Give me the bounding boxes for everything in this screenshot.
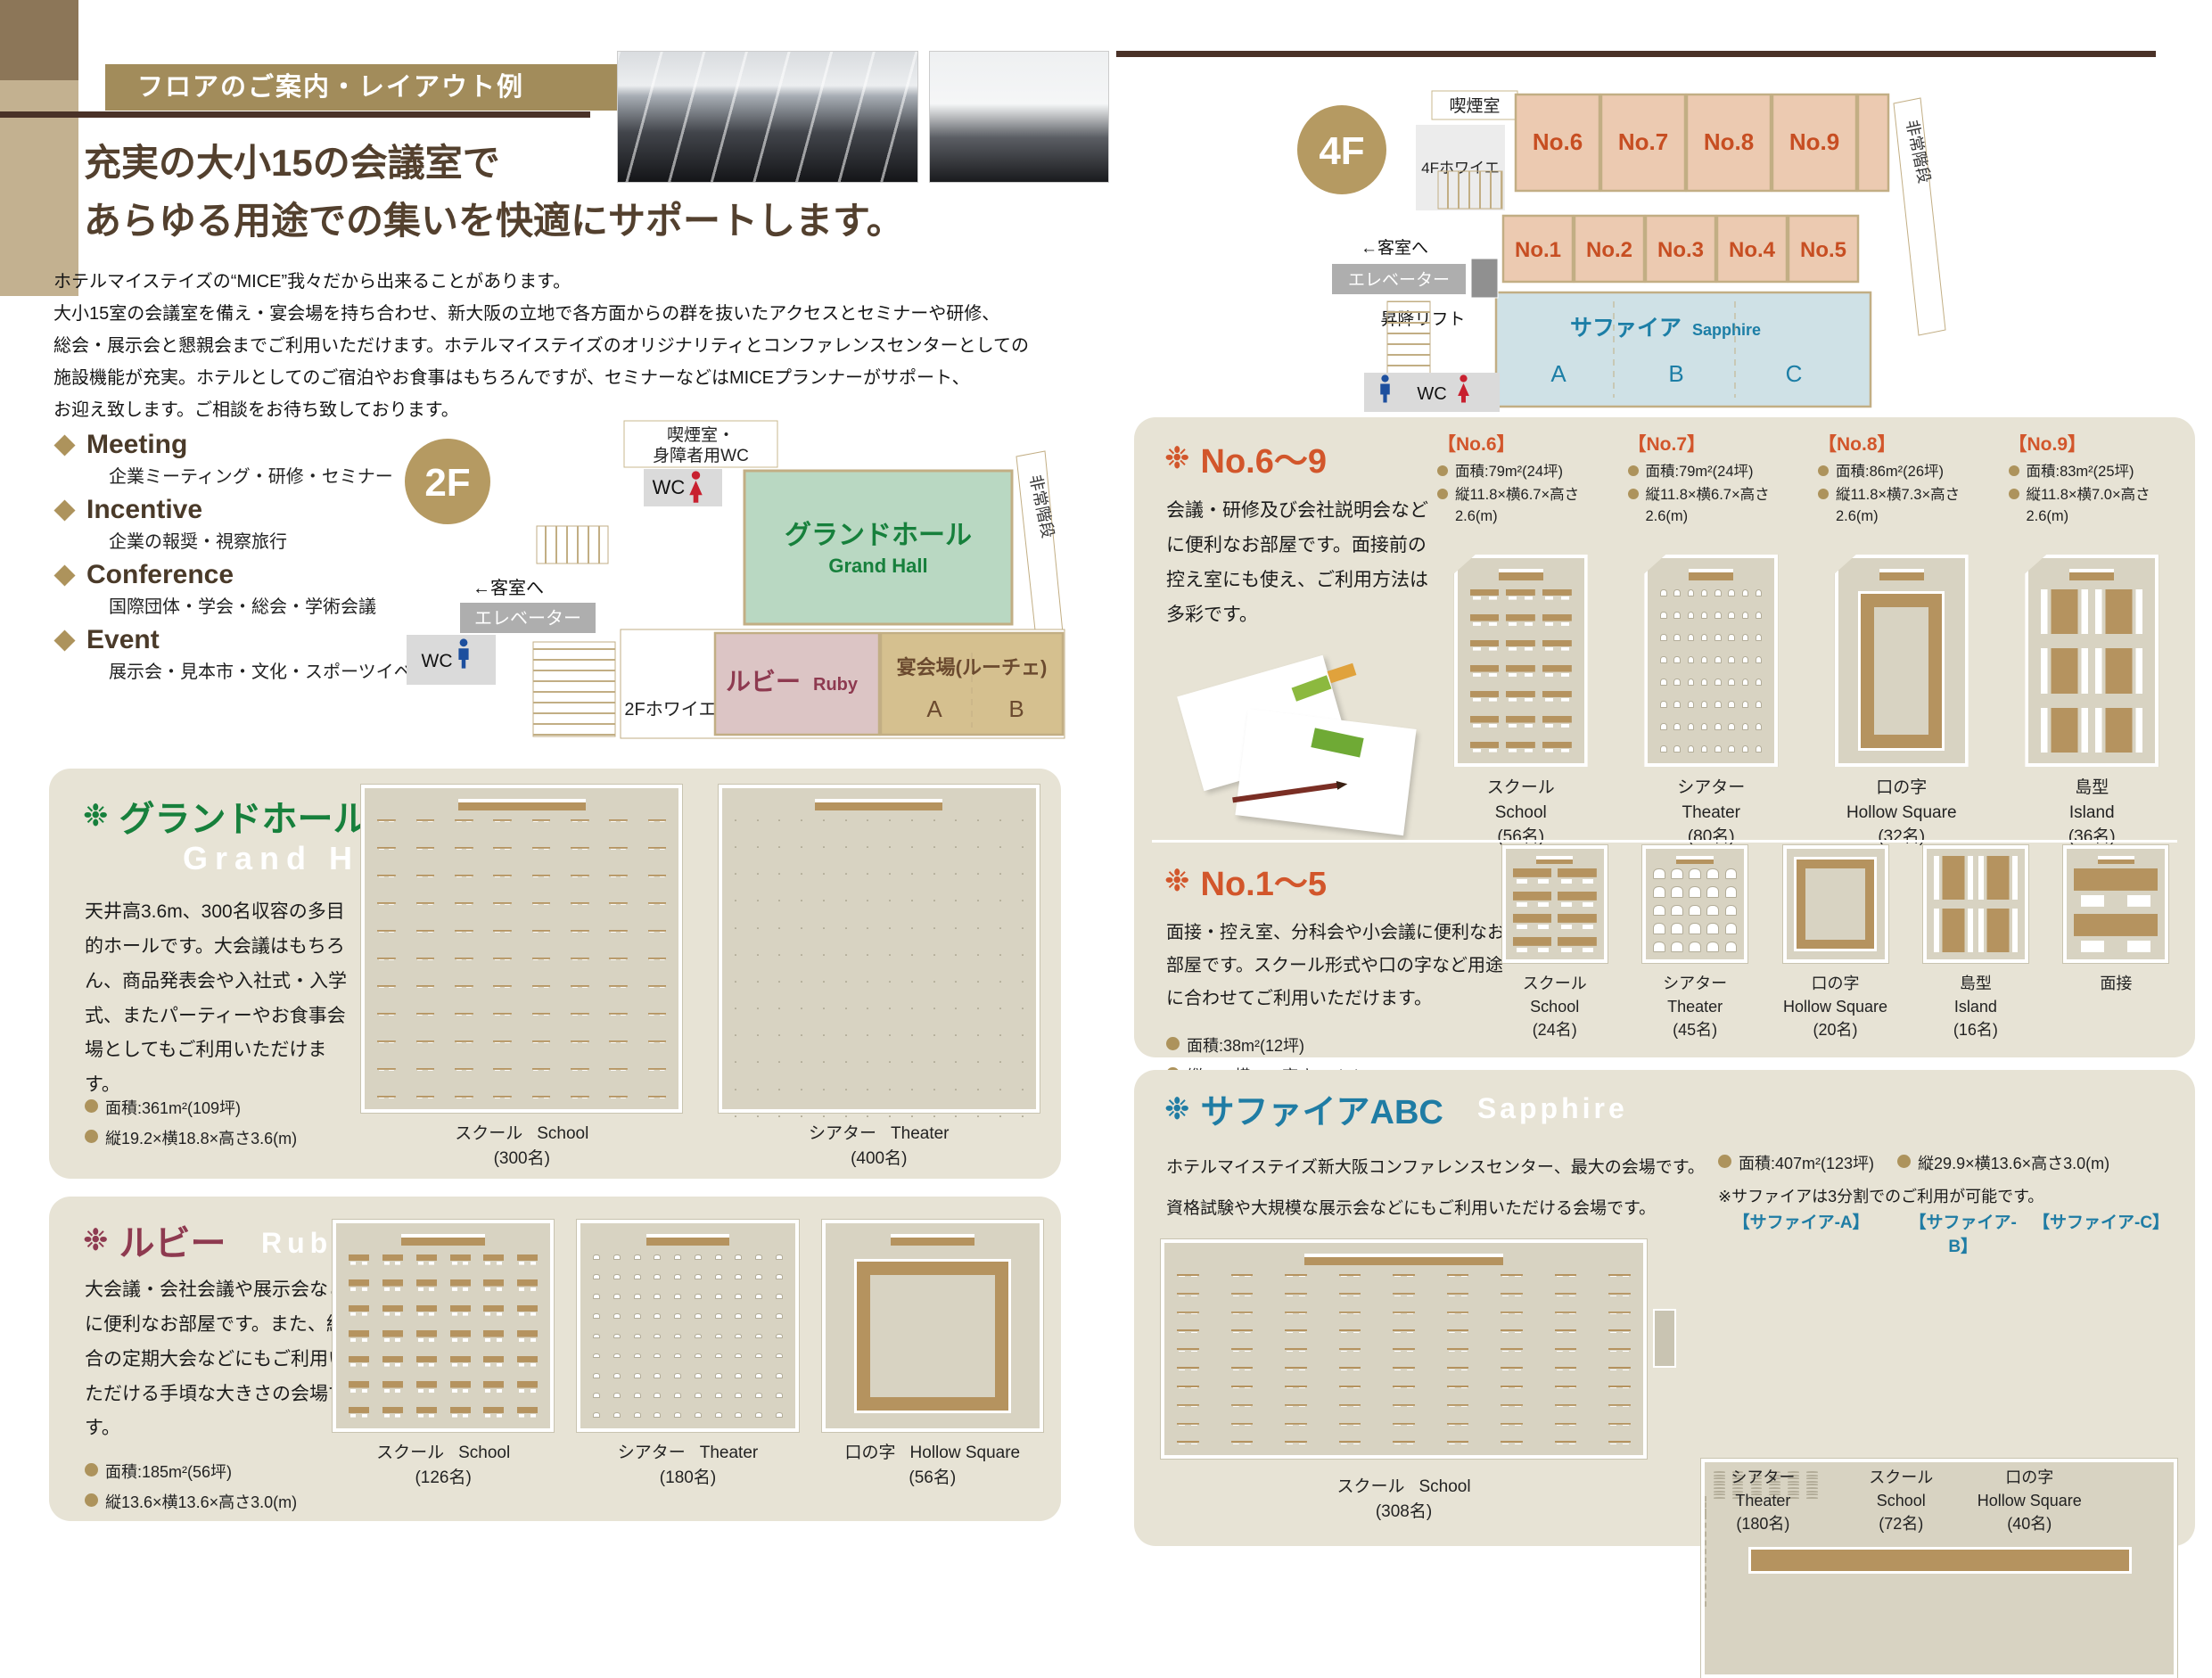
school-seat (1608, 1441, 1631, 1444)
school-seat (483, 1279, 504, 1290)
school-seat (493, 902, 512, 905)
school-seat (1231, 1348, 1254, 1352)
theater-seat (715, 1294, 722, 1299)
theater-seat (955, 1008, 957, 1009)
theater-seat (1653, 905, 1665, 916)
room-layout-diagram (577, 1220, 798, 1432)
school-seat (1285, 1386, 1307, 1389)
theater-seat (715, 1353, 722, 1359)
school-seat (1447, 1367, 1469, 1370)
banquet-area (881, 633, 1063, 735)
wc-upper-label: WC (653, 476, 686, 498)
theater-seat (778, 927, 780, 929)
theater-seat (889, 1034, 891, 1036)
school-seat (349, 1381, 369, 1392)
theater-seat (801, 873, 802, 875)
theater-seat (999, 1008, 1001, 1009)
school-seat (1470, 665, 1500, 676)
theater-seat (735, 1313, 742, 1319)
theater-seat (911, 819, 913, 821)
layout-label: シアターTheater (45名) (1663, 972, 1727, 1041)
school-seat (1339, 1293, 1361, 1296)
sapphire-part-c: C (1786, 360, 1803, 387)
school-seat (455, 1096, 473, 1098)
sapphire-area-label-en: Sapphire (1692, 321, 1761, 339)
theater-seat (1022, 981, 1024, 983)
school-seat (1339, 1441, 1361, 1444)
theater-seat (613, 1412, 621, 1418)
headline-line-2: あらゆる用途での集いを快適にサポートします。 (84, 192, 904, 250)
theater-seat (674, 1353, 681, 1359)
school-seat (382, 1254, 403, 1265)
school-seat (416, 847, 435, 850)
room-specs: 面積:83m²(25坪) 縦11.8×横7.0×高さ2.6(m) (2009, 462, 2176, 547)
theater-seat (889, 954, 891, 956)
no15-title: No.1〜5 (1201, 856, 1327, 905)
school-seat (1506, 742, 1535, 753)
island-seat (1934, 909, 1973, 952)
theater-seat (715, 1393, 722, 1398)
school-seat (382, 1330, 403, 1341)
room-name: 【No.7】 (1628, 430, 1706, 457)
school-seat (349, 1407, 369, 1418)
school-seat (1513, 868, 1552, 884)
theater-seat (911, 981, 913, 983)
theater-seat (1653, 923, 1665, 934)
theater-seat (735, 1061, 736, 1063)
theater-seat (654, 1393, 661, 1398)
island-seat (2095, 648, 2142, 693)
island-seat (2041, 708, 2088, 753)
theater-seat (1022, 873, 1024, 875)
theater-seat (801, 1008, 802, 1009)
no15-layouts: スクールSchool (24名) シアターTheater (45名) 口 (1495, 845, 2175, 1041)
school-seat (1447, 1386, 1469, 1389)
theater-seat (735, 1274, 742, 1279)
theater-seat (911, 927, 913, 929)
theater-seat (593, 1353, 600, 1359)
room-column: 【No.6】 面積:79m²(24坪) 縦11.8×横6.7×高さ2.6(m) … (1437, 430, 1605, 850)
seating-grid (1653, 868, 1737, 952)
theater-seat (735, 954, 736, 956)
school-seat (1339, 1386, 1361, 1389)
theater-seat (1671, 905, 1683, 916)
school-seat (1555, 1441, 1577, 1444)
theater-seat (999, 981, 1001, 983)
theater-seat (933, 981, 935, 983)
theater-seat (715, 1373, 722, 1378)
school-seat (450, 1305, 471, 1316)
theater-seat (1671, 942, 1683, 952)
school-seat (609, 875, 628, 877)
theater-seat (977, 927, 979, 929)
sapphire-note: ※サファイアは3分割でのご利用が可能です。 (1718, 1184, 2043, 1207)
school-seat (1506, 640, 1535, 651)
school-seat (450, 1381, 471, 1392)
theater-seat (654, 1412, 661, 1418)
school-seat (1285, 1367, 1307, 1370)
theater-seat (776, 1412, 783, 1418)
theater-seat (933, 846, 935, 848)
school-seat (349, 1254, 369, 1265)
school-seat (1501, 1312, 1523, 1315)
bullet-icon (1437, 489, 1448, 499)
school-seat (571, 1096, 589, 1098)
presenter-table (1879, 569, 1924, 580)
theater-seat (613, 1334, 621, 1339)
intro-line: 施設機能が充実。ホテルとしてのご宿泊やお食事はもちろんですが、セミナーなどはMI… (53, 362, 1029, 394)
theater-seat (1728, 612, 1734, 619)
sapphire-desc-2: 資格試験や大規模な展示会などにもご利用いただける会場です。 (1166, 1193, 1656, 1224)
presenter-table (458, 799, 586, 810)
theater-seat (911, 1089, 913, 1090)
theater-seat (757, 927, 759, 929)
theater-seat (823, 954, 825, 956)
theater-seat (757, 981, 759, 983)
school-seat (1608, 1312, 1631, 1315)
school-seat (1506, 691, 1535, 702)
floor-map-4f: 4F 喫煙室 4Fホワイエ No.6 No.7 No.8 No.9 No.1 N… (1282, 71, 1986, 415)
school-seat (377, 819, 396, 822)
wc-4f-label: WC (1417, 384, 1446, 404)
theater-seat (867, 819, 868, 821)
theater-seat (634, 1274, 641, 1279)
school-seat (1608, 1386, 1631, 1389)
ruby-specs: 面積:185m²(56坪) 縦13.6×横13.6×高さ3.0(m) (85, 1460, 297, 1521)
theater-seat (634, 1412, 641, 1418)
school-seat (1470, 640, 1500, 651)
theater-seat (1701, 656, 1707, 663)
no69-desc: 会議・研修及び会社説明会などに便利なお部屋です。面接前の控え室にも使え、ご利用方… (1166, 494, 1434, 632)
theater-seat (823, 846, 825, 848)
foyer-2f-label: 2Fホワイエ (624, 700, 716, 720)
room-layout-diagram (1642, 845, 1747, 963)
room-no5-label: No.5 (1800, 238, 1846, 262)
school-seat (2074, 914, 2158, 952)
school-seat (1470, 716, 1500, 727)
theater-seat (674, 1254, 681, 1260)
theater-seat (654, 1294, 661, 1299)
theater-seat (933, 1008, 935, 1009)
sapphire-left-room-diagram (1161, 1239, 1647, 1459)
theater-seat (613, 1254, 621, 1260)
school-seat (1339, 1423, 1361, 1427)
bullet-icon (85, 1463, 98, 1476)
room-specs: 面積:86m²(26坪) 縦11.8×横7.3×高さ2.6(m) (1818, 462, 1986, 547)
theater-seat (911, 954, 913, 956)
smoking-room-label-1: 喫煙室・ (667, 425, 735, 445)
school-seat (1339, 1329, 1361, 1333)
theater-seat (801, 1061, 802, 1063)
school-seat (1555, 1293, 1577, 1296)
room-no9-label: No.9 (1789, 128, 1839, 155)
theater-seat (634, 1313, 641, 1319)
theater-seat (695, 1373, 702, 1378)
school-seat (1231, 1312, 1254, 1315)
theater-seat (654, 1313, 661, 1319)
theater-seat (776, 1313, 783, 1319)
theater-seat (823, 900, 825, 901)
school-seat (377, 875, 396, 877)
room-specs: 面積:79m²(24坪) 縦11.8×横6.7×高さ2.6(m) (1437, 462, 1605, 547)
theater-seat (1022, 1061, 1024, 1063)
sapphire-left-label: スクールSchool (308名) (1161, 1475, 1647, 1524)
theater-seat (867, 873, 868, 875)
sapphire-title-ja: サファイアABC (1201, 1084, 1443, 1133)
theater-seat (1673, 723, 1680, 730)
theater-seat (778, 1115, 780, 1117)
ruby-area-label-en: Ruby (813, 675, 859, 695)
theater-seat (977, 1061, 979, 1063)
school-seat (648, 985, 667, 988)
school-seat (648, 819, 667, 822)
layout-label: 口の字Hollow Square (56名) (845, 1441, 1021, 1490)
school-seat (1558, 914, 1597, 929)
theater-seat (823, 873, 825, 875)
page-headline: 充実の大小15の会議室で あらゆる用途での集いを快適にサポートします。 (84, 134, 904, 250)
theater-seat (889, 1008, 891, 1009)
theater-seat (634, 1334, 641, 1339)
school-seat (416, 1381, 437, 1392)
theater-seat (801, 927, 802, 929)
sapphire-sub-labels: 【サファイア-A】 【サファイア-B】 【サファイア-C】 (1701, 1209, 2177, 1257)
theater-seat (1660, 612, 1666, 619)
theater-seat (634, 1373, 641, 1378)
school-seat (450, 1254, 471, 1265)
layout-label: シアターTheater (180名) (618, 1441, 759, 1490)
school-seat (1285, 1348, 1307, 1352)
school-seat (1231, 1386, 1254, 1389)
theater-seat (845, 873, 847, 875)
theater-seat (735, 927, 736, 929)
theater-seat (911, 900, 913, 901)
school-seat (493, 1013, 512, 1016)
theater-seat (1725, 868, 1738, 879)
theater-seat (715, 1313, 722, 1319)
header-rule-left (0, 111, 590, 118)
bullet-icon (1818, 465, 1829, 476)
school-seat (1231, 1367, 1254, 1370)
school-seat (1506, 614, 1535, 625)
school-seat (532, 875, 551, 877)
school-seat (1555, 1329, 1577, 1333)
theater-seat (757, 1008, 759, 1009)
school-seat (1393, 1367, 1415, 1370)
school-seat (416, 875, 435, 877)
school-seat (1447, 1441, 1469, 1444)
theater-seat (1022, 900, 1024, 901)
theater-seat (999, 1089, 1001, 1090)
grand-hall-specs: 面積:361m²(109坪) 縦19.2×横18.8×高さ3.6(m) (85, 1097, 297, 1157)
school-seat (1558, 868, 1597, 884)
theater-seat (735, 1393, 742, 1398)
room-layout-diagram (1835, 555, 1969, 767)
theater-seat (1756, 612, 1762, 619)
school-seat (1285, 1423, 1307, 1427)
school-seat (571, 847, 589, 850)
theater-seat (977, 1089, 979, 1090)
school-seat (517, 1356, 538, 1367)
no15-desc: 面接・控え室、分科会や小会議に便利なお部屋です。スクール形式や口の字など用途に合… (1166, 917, 1505, 1016)
theater-seat (1673, 701, 1680, 708)
theater-seat (1673, 679, 1680, 686)
layout-capacity: (72名) (1869, 1512, 1933, 1535)
mice-item-title: Conference (86, 560, 234, 590)
school-seat (1542, 691, 1572, 702)
intro-line: ホテルマイステイズの“MICE”我々だから出来ることがあります。 (53, 266, 1029, 298)
layout-capacity: (40名) (1978, 1512, 2082, 1535)
school-seat (1339, 1348, 1361, 1352)
theater-seat (801, 1115, 802, 1117)
bullet-icon (1628, 465, 1639, 476)
school-seat (1558, 937, 1597, 952)
school-seat (571, 958, 589, 960)
theater-seat (634, 1353, 641, 1359)
theater-seat (1742, 589, 1748, 596)
layout-label: シアターTheater (80名) (1677, 776, 1745, 850)
theater-seat (1701, 745, 1707, 753)
theater-seat (911, 1034, 913, 1036)
theater-seat (757, 954, 759, 956)
theater-seat (1701, 634, 1707, 641)
school-seat (571, 930, 589, 933)
bullet-icon (1818, 489, 1829, 499)
theater-seat (674, 1274, 681, 1279)
theater-seat (1701, 679, 1707, 686)
layout-column: 口の字Hollow Square (20名) (1776, 845, 1895, 1041)
ruby-layouts: スクールSchool (126名) シアターTheater (180名) (333, 1220, 1043, 1490)
school-seat (1231, 1423, 1254, 1427)
theater-seat (735, 846, 736, 848)
theater-seat (613, 1373, 621, 1378)
school-seat (1177, 1274, 1199, 1278)
layout-capacity: (20名) (1783, 1018, 1887, 1041)
sapphire-sub-a: 【サファイア-A】 (1701, 1209, 1901, 1257)
school-seat (1231, 1329, 1254, 1333)
school-seat (1501, 1386, 1523, 1389)
sapphire-specs: 面積:407m²(123坪) 縦29.9×横13.6×高さ3.0(m) (1718, 1152, 2109, 1182)
theater-seat (1715, 701, 1721, 708)
layout-label: スクールSchool (24名) (1523, 972, 1587, 1041)
floor-badge-4f-label: 4F (1319, 129, 1364, 173)
to-guest-rooms-label: ←客室へ (473, 578, 544, 598)
ruby-desc: 大会議・会社会議や展示会などに便利なお部屋です。また、組合の定期大会などにもご利… (85, 1273, 352, 1446)
room-name: 【No.8】 (1818, 430, 1896, 457)
theater-seat (654, 1334, 661, 1339)
school-seat (493, 847, 512, 850)
school-seat (532, 819, 551, 822)
theater-seat (999, 900, 1001, 901)
theater-seat (735, 1008, 736, 1009)
school-seat (532, 847, 551, 850)
room-layout-diagram (822, 1220, 1043, 1432)
school-seat (1555, 1274, 1577, 1278)
sapphire-part-b: B (1668, 360, 1683, 387)
no15-spec-area: 面積:38m²(12坪) (1187, 1034, 1304, 1057)
theater-seat (955, 846, 957, 848)
theater-seat (1742, 612, 1748, 619)
theater-seat (634, 1294, 641, 1299)
school-seat (648, 875, 667, 877)
theater-seat (755, 1353, 762, 1359)
room-column: 【No.7】 面積:79m²(24坪) 縦11.8×横6.7×高さ2.6(m) … (1628, 430, 1796, 850)
layout-label: スクールSchool (126名) (376, 1441, 510, 1490)
school-seat (382, 1279, 403, 1290)
school-seat (532, 1068, 551, 1071)
island-seat (1978, 856, 2018, 900)
school-seat (455, 819, 473, 822)
theater-seat (593, 1393, 600, 1398)
layout-column: スクールSchool (24名) (1495, 845, 1614, 1041)
hollow-square-tables (1751, 1550, 2128, 1571)
theater-seat (674, 1393, 681, 1398)
theater-seat (757, 846, 759, 848)
school-seat (416, 958, 435, 960)
theater-seat (1022, 846, 1024, 848)
theater-seat (889, 981, 891, 983)
school-seat (455, 930, 473, 933)
theater-seat (1756, 656, 1762, 663)
school-seat (416, 1279, 437, 1290)
school-seat (455, 1041, 473, 1043)
photo-meeting-room (929, 51, 1109, 183)
theater-seat (1022, 1008, 1024, 1009)
intro-line: 総会・展示会と懇親会までご利用いただけます。ホテルマイステイズのオリジナリティと… (53, 330, 1029, 362)
theater-seat (933, 819, 935, 821)
theater-seat (1653, 942, 1665, 952)
theater-seat (735, 873, 736, 875)
theater-seat (889, 846, 891, 848)
school-seat (571, 1068, 589, 1071)
school-seat (1470, 742, 1500, 753)
theater-seat (1742, 679, 1748, 686)
school-seat (1393, 1274, 1415, 1278)
theater-seat (1756, 634, 1762, 641)
theater-seat (757, 1115, 759, 1117)
theater-seat (715, 1274, 722, 1279)
papers-illustration (1179, 656, 1419, 835)
sapphire-spec-dims: 縦29.9×横13.6×高さ3.0(m) (1918, 1152, 2109, 1175)
layout-label: 口の字Hollow Square (20名) (1783, 972, 1887, 1041)
school-seat (416, 1254, 437, 1265)
theater-seat (845, 1089, 847, 1090)
layout-label: シアターTheater (180名) (1731, 1466, 1795, 1535)
school-seat (455, 902, 473, 905)
school-seat (1558, 892, 1597, 907)
theater-seat (776, 1393, 783, 1398)
school-seat (1501, 1293, 1523, 1296)
theater-seat (757, 1034, 759, 1036)
school-seat (1393, 1312, 1415, 1315)
theater-seat (845, 819, 847, 821)
school-seat (382, 1381, 403, 1392)
theater-seat (755, 1254, 762, 1260)
theater-seat (613, 1274, 621, 1279)
school-seat (1447, 1293, 1469, 1296)
bullet-icon (85, 1099, 98, 1113)
theater-seat (776, 1353, 783, 1359)
grand-spec-area: 面積:361m²(109坪) (105, 1097, 241, 1120)
room-layout-diagram (1454, 555, 1588, 767)
school-seat (1555, 1348, 1577, 1352)
school-seat (1177, 1441, 1199, 1444)
theater-seat (1671, 923, 1683, 934)
school-seat (1555, 1312, 1577, 1315)
school-seat (1447, 1423, 1469, 1427)
school-seat (571, 875, 589, 877)
section-small-rooms: ❉ No.6〜9 会議・研修及び会社説明会などに便利なお部屋です。面接前の控え室… (1134, 417, 2195, 1057)
theater-seat (1022, 927, 1024, 929)
